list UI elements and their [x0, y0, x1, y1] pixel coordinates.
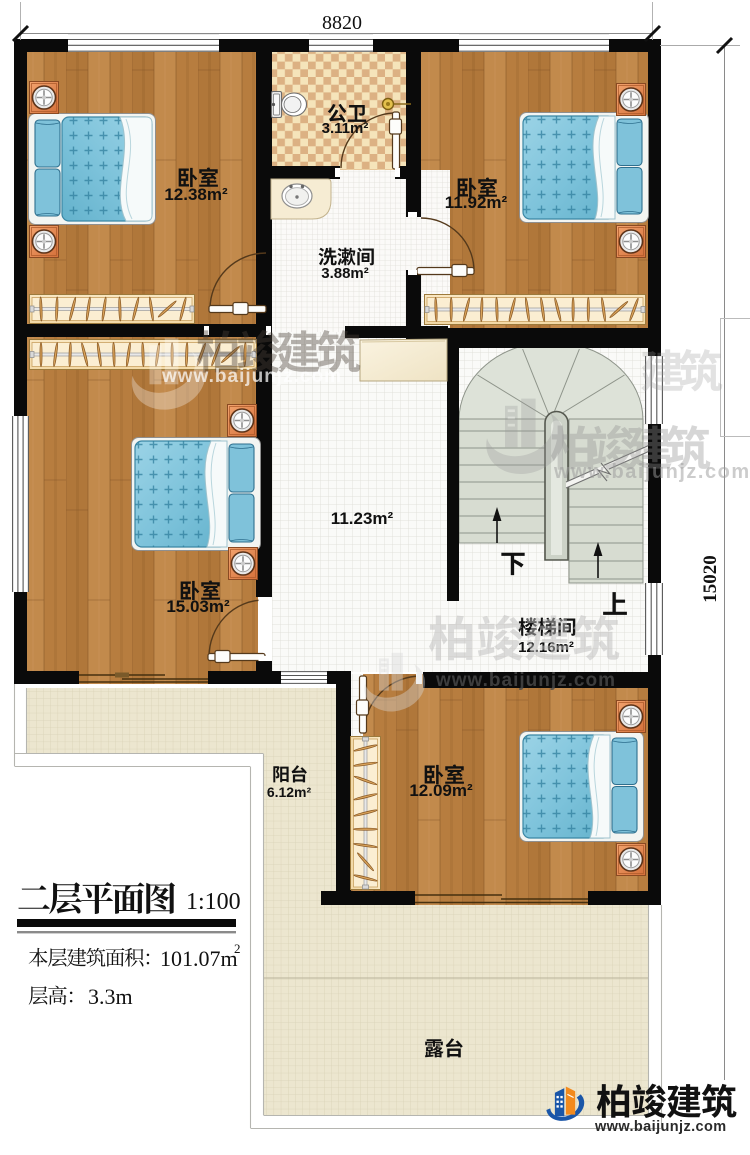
svg-text:12.09m²: 12.09m² [409, 781, 473, 800]
svg-text:3.3m: 3.3m [88, 984, 133, 1009]
svg-text:www.baijunjz.com: www.baijunjz.com [435, 670, 616, 691]
svg-text:8820: 8820 [322, 12, 362, 34]
svg-text:1:100: 1:100 [186, 889, 241, 915]
svg-text:2: 2 [234, 941, 241, 956]
svg-text:www.baijunjz.com: www.baijunjz.com [553, 461, 750, 483]
svg-text:6.12m²: 6.12m² [267, 784, 312, 800]
svg-text:15.03m²: 15.03m² [166, 597, 230, 616]
svg-text:101.07m: 101.07m [160, 946, 238, 971]
svg-text:15020: 15020 [700, 555, 721, 603]
svg-text:11.92m²: 11.92m² [445, 193, 508, 212]
svg-text:www.baijunjz.com: www.baijunjz.com [594, 1119, 727, 1135]
svg-text:11.23m²: 11.23m² [331, 509, 394, 528]
svg-text:12.38m²: 12.38m² [164, 185, 228, 204]
svg-text:www.baijunjz.com: www.baijunjz.com [161, 366, 342, 387]
svg-text:3.11m²: 3.11m² [322, 120, 369, 137]
svg-text:3.88m²: 3.88m² [321, 265, 369, 282]
